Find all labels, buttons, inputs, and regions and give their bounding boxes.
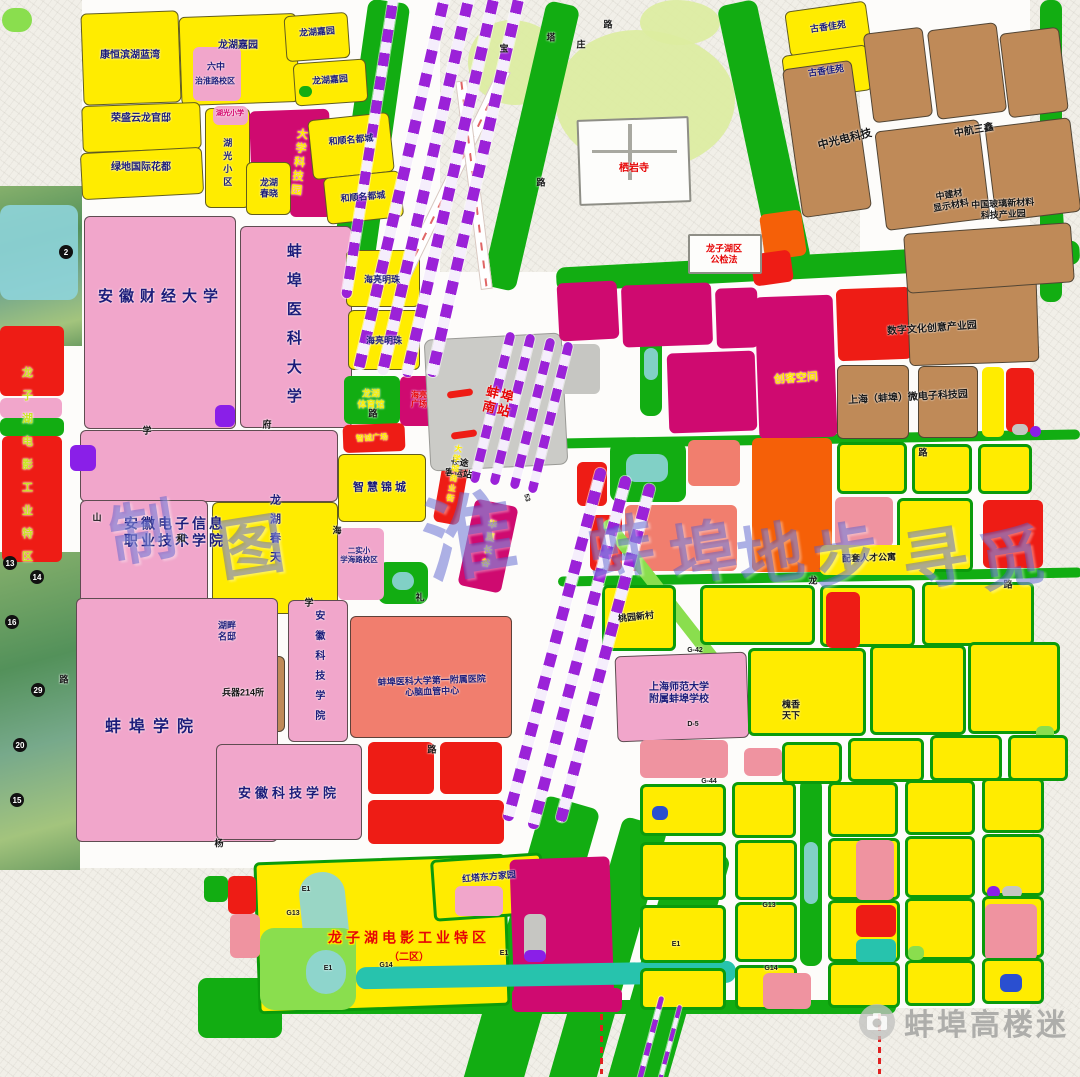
map-label: 蚌埠医科大学 <box>284 243 302 417</box>
map-label: 湖光小区 <box>222 138 233 190</box>
parcel <box>908 946 924 960</box>
map-label: 路 <box>918 448 927 459</box>
map-label: G-42 <box>687 647 703 655</box>
parcel <box>744 748 782 776</box>
map-label: 康恒滨湖蓝湾 <box>100 50 160 62</box>
parcel <box>732 782 796 838</box>
parcel <box>688 440 740 486</box>
boxline <box>592 150 677 153</box>
parcel <box>763 973 811 1009</box>
parcel <box>982 367 1004 437</box>
water <box>392 572 414 590</box>
map-label: 六中 <box>207 62 225 73</box>
map-label: 治淮路校区 <box>195 76 235 85</box>
map-label: 路 <box>368 409 377 420</box>
map-label: 栖岩寺 <box>619 163 649 175</box>
parcel <box>368 742 434 794</box>
map-label: 龙湖 体育馆 <box>357 388 384 409</box>
parcel <box>81 102 202 153</box>
map-label: 兵器214所 <box>222 688 264 699</box>
map-label: G14 <box>379 962 392 970</box>
map-label: 龙子湖区 公检法 <box>706 243 742 264</box>
numbered-marker: 13 <box>3 556 17 570</box>
numbered-marker: 15 <box>10 793 24 807</box>
parcel <box>455 886 503 916</box>
parcel <box>905 836 975 898</box>
parcel <box>2 8 32 32</box>
parcel <box>299 86 312 97</box>
map-label: 智诚广场 <box>356 432 388 443</box>
map-label: 山 <box>92 513 101 524</box>
parcel <box>640 842 726 900</box>
map-label: 上海师范大学 附属蚌埠学校 <box>649 682 709 706</box>
parcel <box>652 806 668 820</box>
planning-map[interactable]: 蚌埠高楼迷 康恒滨湖蓝湾龙湖嘉园龙湖嘉园龙湖嘉园六中治淮路校区荣盛云龙官邸绿地国… <box>0 0 1080 1077</box>
hill <box>640 0 720 45</box>
water <box>644 348 658 380</box>
map-label: 塔 <box>546 33 555 44</box>
map-label: 杨 <box>214 839 223 850</box>
camera-icon <box>858 1003 896 1041</box>
parcel-chuangke <box>755 295 838 440</box>
parcel <box>856 939 896 963</box>
parcel <box>735 840 797 900</box>
map-label: 路 <box>603 20 612 31</box>
parcel <box>512 988 622 1012</box>
map-label: 绿地国际花都 <box>111 162 171 174</box>
map-label: 宝 <box>499 44 508 55</box>
parcel <box>228 876 256 914</box>
parcel <box>70 445 96 471</box>
map-label: 路 <box>427 745 436 756</box>
map-label: 53 <box>521 493 531 503</box>
map-label: 龙湖 春晓 <box>260 177 278 198</box>
map-label: 龙子湖电影工业特区 <box>20 367 33 574</box>
numbered-marker: 2 <box>59 245 73 259</box>
parcel <box>1012 424 1028 435</box>
parcel <box>782 742 842 784</box>
parcel <box>524 950 546 962</box>
parcel <box>1008 735 1068 781</box>
map-label: 安徽财经大学 <box>98 288 224 306</box>
parcel <box>848 738 924 782</box>
watermark-char: 淮 <box>412 457 524 603</box>
map-label: 学 <box>142 426 151 437</box>
map-label: 湖畔 名邸 <box>218 620 236 641</box>
parcel <box>557 280 620 341</box>
map-label: E1 <box>672 941 681 949</box>
parcel <box>930 735 1002 781</box>
parcel <box>307 112 395 180</box>
temple <box>577 116 692 206</box>
numbered-marker: 29 <box>31 683 45 697</box>
map-label: G-44 <box>701 778 717 786</box>
parcel-liuzhong <box>193 47 241 101</box>
parcel <box>828 782 898 837</box>
rdash <box>600 1014 603 1074</box>
parcel <box>735 902 797 962</box>
map-label: 荣盛云龙官邸 <box>111 113 171 125</box>
parcel-huaixiang <box>748 648 866 736</box>
parcel <box>1006 368 1034 432</box>
map-label: D-5 <box>687 721 698 729</box>
parcel <box>1030 426 1041 437</box>
parcel <box>640 905 726 963</box>
map-label: 湖光小学 <box>216 110 244 118</box>
parcel <box>715 287 759 348</box>
map-label: 槐香 天下 <box>782 699 800 720</box>
logo-watermark: 蚌埠高楼迷 <box>858 1000 1069 1044</box>
parcel <box>667 350 758 433</box>
parcel-anhui-caijing-daxue <box>84 216 236 429</box>
map-label: 海 <box>332 526 341 537</box>
map-label: 礼 <box>415 593 424 604</box>
map-label: 安徽科技学院 <box>238 785 340 800</box>
map-label: 安徽科技学院 <box>312 610 324 730</box>
parcel-shuzi-red <box>836 287 912 362</box>
map-label: E1 <box>302 886 311 894</box>
map-label: 龙湖嘉园 <box>218 40 258 52</box>
water <box>804 842 818 904</box>
numbered-marker: 16 <box>5 615 19 629</box>
parcel <box>978 444 1032 494</box>
parcel <box>440 742 502 794</box>
parcel <box>863 27 934 124</box>
map-label: 蚌埠学院 <box>105 719 201 738</box>
parcel <box>927 22 1007 120</box>
parcel <box>640 740 728 778</box>
map-label: G14 <box>764 965 777 973</box>
map-label: 智慧锦城 <box>353 482 409 495</box>
park-photo-south <box>0 552 80 870</box>
parcel <box>905 780 975 835</box>
parcel <box>640 968 726 1010</box>
map-label: 蚌埠医科大学第一附属医院 心脑血管中心 <box>378 674 487 699</box>
map-label: （二区） <box>389 952 429 964</box>
parcel <box>368 800 504 844</box>
parcel <box>999 27 1069 119</box>
parcel <box>903 222 1075 294</box>
parcel <box>985 904 1037 960</box>
map-label: 龙子湖电影工业特区 <box>328 930 490 947</box>
numbered-marker: 20 <box>13 738 27 752</box>
parcel <box>215 405 235 427</box>
map-label: 海亮 广场 <box>411 391 427 410</box>
parcel <box>856 905 896 937</box>
credit-text: 蚌埠高楼迷 <box>904 1000 1069 1044</box>
numbered-marker: 14 <box>30 570 44 584</box>
map-label: 海亮明珠 <box>366 336 402 347</box>
parcel <box>837 442 907 494</box>
parcel <box>230 914 260 958</box>
map-label: G13 <box>286 910 299 918</box>
map-label: 路 <box>59 675 68 686</box>
parcel <box>968 642 1060 734</box>
map-label: G13 <box>762 902 775 910</box>
parcel <box>204 876 228 902</box>
parcel <box>870 645 966 735</box>
parcel <box>621 282 713 347</box>
map-label: 中国玻璃新材料 科技产业园 <box>971 197 1035 221</box>
water <box>626 454 668 482</box>
map-label: 路 <box>536 178 545 189</box>
parcel <box>856 840 894 900</box>
map-label: E1 <box>500 950 509 958</box>
map-label: 学 <box>304 598 313 609</box>
map-label: E1 <box>324 965 333 973</box>
parcel <box>982 778 1044 833</box>
map-label: 府 <box>262 420 271 431</box>
map-label: 海亮明珠 <box>364 275 400 286</box>
parcel <box>1000 974 1022 992</box>
map-label: 二实小 学海路校区 <box>340 547 378 565</box>
map-label: 庄 <box>576 40 585 51</box>
